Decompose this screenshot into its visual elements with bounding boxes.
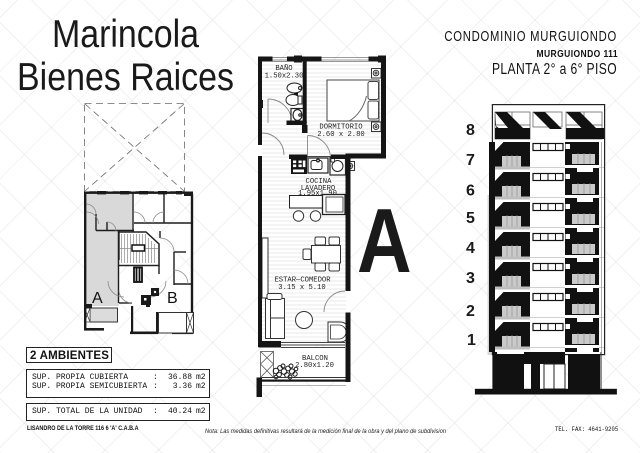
svg-text:B: B: [167, 290, 178, 307]
svg-text:8: 8: [466, 122, 475, 139]
svg-text:2.80x1.20: 2.80x1.20: [295, 362, 334, 370]
svg-text:7: 7: [466, 152, 475, 169]
svg-text:3.15 x 5.10: 3.15 x 5.10: [278, 284, 325, 292]
svg-text:2.60 x 2.80: 2.60 x 2.80: [317, 131, 364, 139]
svg-text:1.95x1.90: 1.95x1.90: [298, 190, 337, 198]
svg-text:1.50x2.30: 1.50x2.30: [265, 73, 304, 81]
svg-text:1: 1: [467, 332, 476, 349]
svg-text:A: A: [92, 290, 103, 307]
svg-text:3: 3: [466, 270, 475, 287]
svg-text:6: 6: [466, 183, 475, 200]
svg-text:4: 4: [466, 240, 475, 257]
svg-text:2: 2: [466, 303, 475, 320]
svg-text:5: 5: [466, 210, 475, 227]
